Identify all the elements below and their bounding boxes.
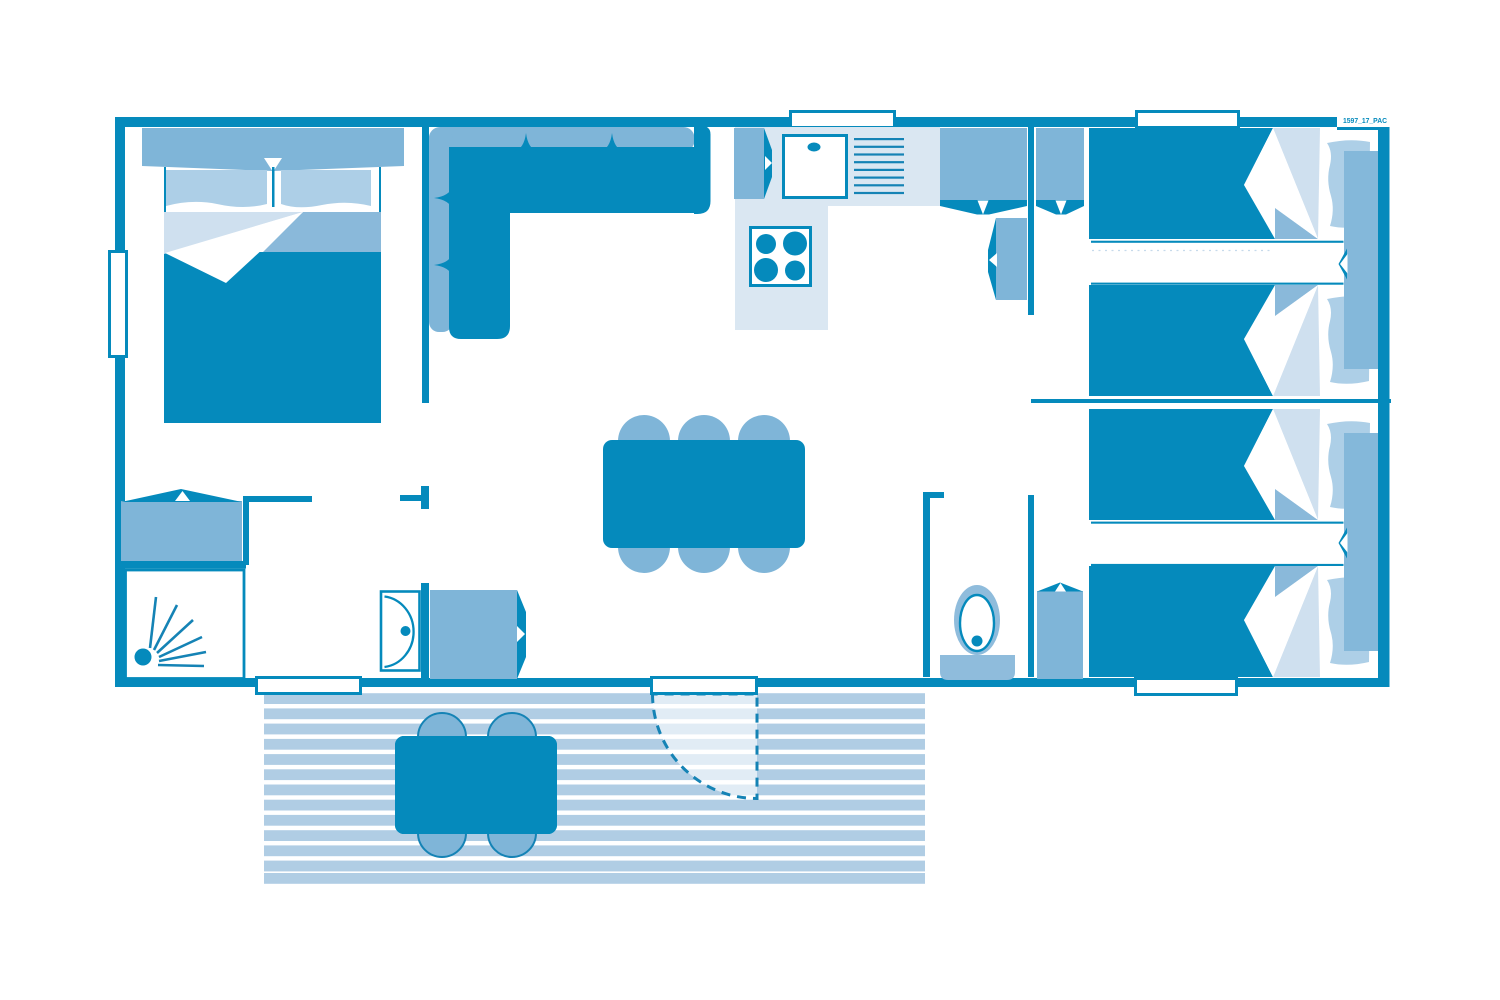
svg-text:1597_17_PAC: 1597_17_PAC (1343, 118, 1387, 125)
